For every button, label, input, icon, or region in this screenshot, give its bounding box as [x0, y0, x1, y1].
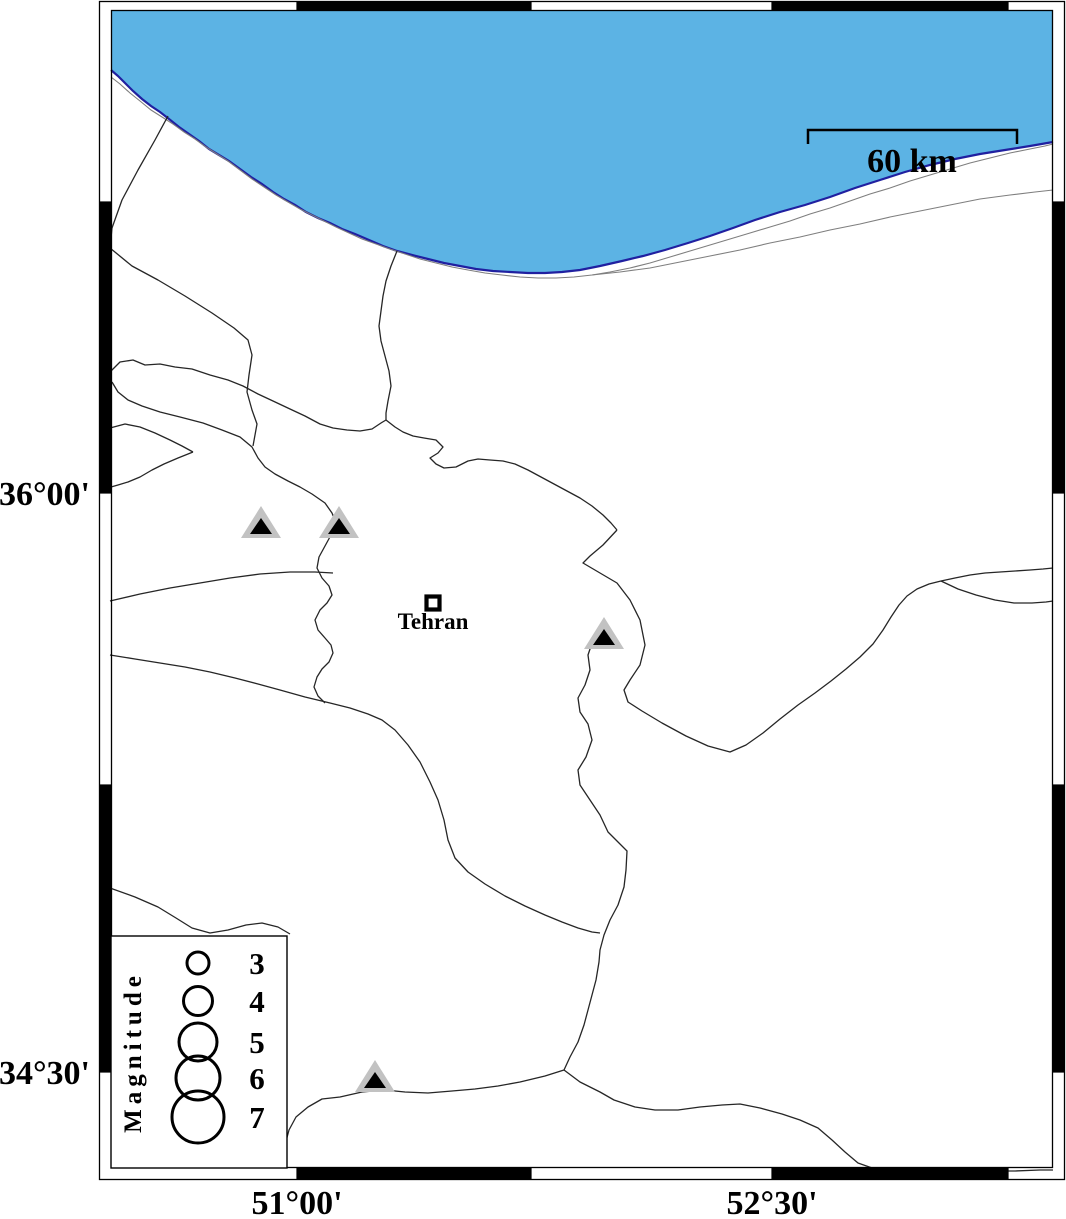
legend-value-m3: 3	[249, 946, 265, 981]
legend-value-m7: 7	[249, 1100, 265, 1135]
magnitude-legend: Magnitude 34567	[111, 936, 287, 1168]
lon-tick-label-1: 51°00'	[251, 1185, 342, 1219]
lat-tick-label-2: 34°30'	[0, 1055, 90, 1092]
boundary-south-west	[283, 1070, 564, 1168]
map-canvas: 60 km Tehran	[0, 0, 1066, 1219]
volcano-marker-3	[584, 617, 624, 649]
map-page: 60 km Tehran	[0, 0, 1066, 1219]
lat-tick-label-1: 36°00'	[0, 476, 90, 513]
volcano-layer	[241, 506, 624, 1092]
boundary-central-upper	[110, 360, 617, 530]
legend-value-m6: 6	[249, 1061, 265, 1096]
boundary-legend-area	[110, 888, 290, 934]
boundary-vertical-middle	[564, 640, 627, 1070]
sea-layer	[111, 10, 1053, 273]
boundary-east-branch	[941, 581, 1053, 603]
sea-polygon	[111, 10, 1053, 273]
volcano-marker-2	[319, 506, 359, 538]
boundary-from-coast	[379, 251, 397, 420]
city-layer: Tehran	[398, 597, 469, 635]
legend-value-m4: 4	[249, 984, 265, 1019]
city-square-marker	[427, 597, 440, 610]
boundary-west-spur	[110, 572, 333, 601]
boundary-central-lower	[112, 382, 336, 703]
volcano-marker-4	[355, 1060, 395, 1092]
boundary-wedge-lower	[111, 452, 193, 487]
legend-title: Magnitude	[120, 971, 147, 1133]
boundary-wedge-upper	[110, 424, 193, 452]
lon-tick-label-2: 52°30'	[726, 1185, 817, 1219]
boundary-sw-diagonal	[110, 655, 600, 933]
city-label: Tehran	[398, 609, 469, 634]
scale-bar-label: 60 km	[867, 143, 957, 180]
volcano-marker-1	[241, 506, 281, 538]
boundary-east-loop	[583, 530, 1053, 752]
boundary-south-east	[564, 1070, 1053, 1173]
legend-value-m5: 5	[249, 1025, 265, 1060]
